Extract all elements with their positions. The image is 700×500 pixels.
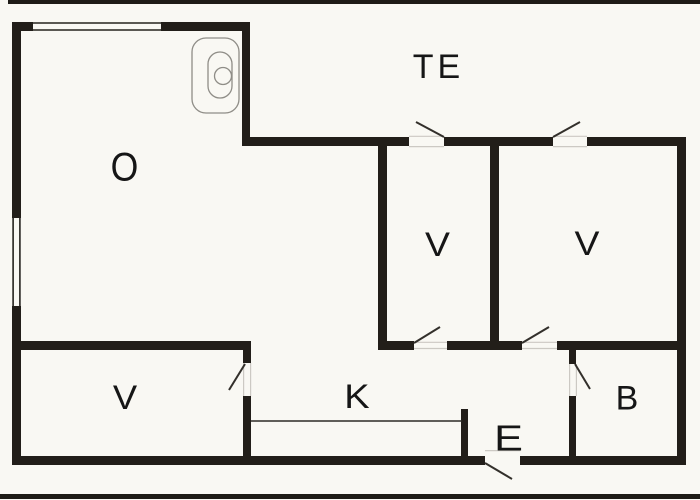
svg-text:V: V — [575, 225, 600, 263]
svg-text:O: O — [111, 146, 139, 190]
svg-text:TE: TE — [413, 48, 464, 86]
svg-text:V: V — [425, 226, 450, 264]
svg-text:B: B — [616, 380, 639, 418]
svg-text:V: V — [113, 379, 138, 417]
svg-text:K: K — [344, 377, 369, 416]
svg-text:E: E — [494, 419, 523, 459]
